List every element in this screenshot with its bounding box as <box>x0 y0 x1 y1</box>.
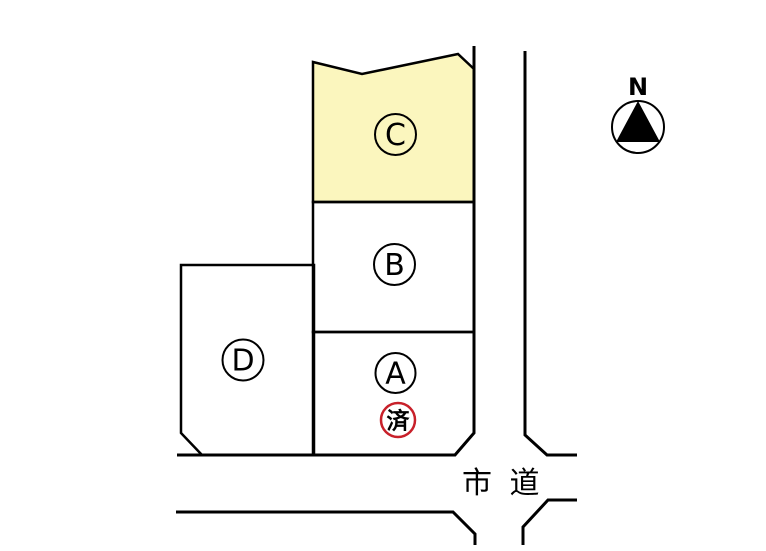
road-label: 市 道 <box>462 466 544 501</box>
north-label: N <box>628 73 648 101</box>
plot-d-label: D <box>231 344 254 379</box>
north-arrow: N <box>612 73 664 153</box>
lot-map-canvas: C B A D 済 市 道 N <box>0 0 766 551</box>
road-edge-south-east <box>523 500 577 545</box>
sold-stamp: 済 <box>381 403 415 437</box>
plot-shapes <box>181 54 474 455</box>
lot-map-svg: C B A D 済 市 道 N <box>0 0 766 551</box>
plot-b-label: B <box>384 248 405 283</box>
sold-stamp-text: 済 <box>387 408 411 435</box>
road-edge-south-west <box>176 512 475 545</box>
plot-c-label: C <box>385 118 406 153</box>
plot-a-label: A <box>385 357 406 392</box>
road-edge-vertical-east <box>525 51 577 455</box>
